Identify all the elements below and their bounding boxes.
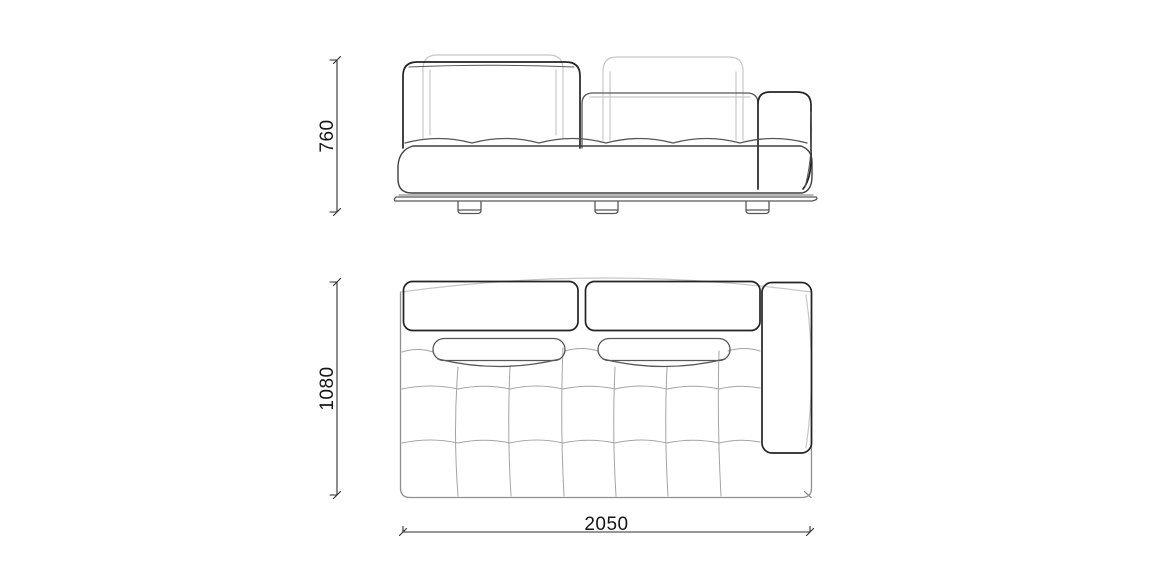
foot-right — [746, 202, 769, 214]
foot-center — [595, 202, 618, 214]
ghost-backrest-right-outline — [603, 57, 743, 140]
plan-back-arc — [401, 278, 811, 292]
plan-body-outline — [401, 292, 812, 498]
foot-left — [458, 202, 481, 214]
sofa-dimension-drawing: 760 1080 2050 — [0, 0, 1170, 563]
front-view — [394, 55, 816, 214]
lumbar-pillow-right — [598, 339, 730, 361]
tuft-grid-upper-stubs — [402, 349, 760, 353]
technical-drawing-svg: 760 1080 2050 — [0, 0, 1170, 563]
ghost-backrest-left-inner-lines — [430, 70, 556, 135]
depth-dimension-label: 1080 — [317, 366, 338, 410]
height-dimension-label: 760 — [317, 119, 338, 152]
tuft-grid-horizontal-1 — [402, 386, 760, 389]
top-view — [401, 278, 812, 498]
base-plinth-band — [394, 197, 816, 201]
plan-armrest — [762, 283, 812, 454]
backrest-left-seam — [409, 65, 574, 67]
low-backrest-outline — [582, 93, 758, 148]
height-dimension: 760 — [317, 57, 341, 216]
tuft-grid-verticals — [456, 348, 722, 496]
ghost-backrest-left-outline — [423, 55, 563, 138]
width-dimension: 2050 — [400, 514, 814, 536]
depth-dimension: 1080 — [317, 279, 341, 499]
width-dimension-label: 2050 — [584, 514, 628, 535]
lumbar-pillow-left — [433, 339, 565, 361]
plan-backrest-cushion-right — [586, 282, 761, 331]
seat-scallop-line — [405, 139, 807, 144]
ghost-backrest-right-inner-lines — [610, 72, 736, 140]
armrest-front-outline — [758, 92, 811, 189]
seat-body-outline — [398, 146, 812, 193]
